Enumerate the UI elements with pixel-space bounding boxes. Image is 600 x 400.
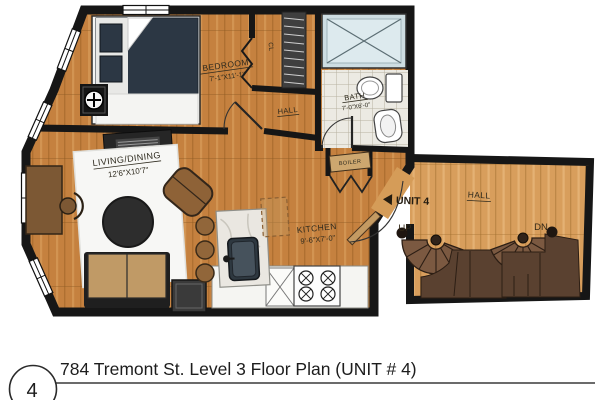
bathtub xyxy=(322,14,406,68)
coffee-table xyxy=(103,197,153,247)
hall-label-group: HALL xyxy=(276,105,299,117)
title-block: 4 784 Tremont St. Level 3 Floor Plan (UN… xyxy=(10,359,596,400)
cabinet-x xyxy=(266,268,294,306)
side-table xyxy=(172,280,206,312)
bar-stools xyxy=(196,217,214,282)
sheet-number: 4 xyxy=(26,380,37,400)
desk xyxy=(26,166,62,234)
nightstand xyxy=(80,84,108,116)
stove xyxy=(294,266,340,306)
stairs-up-label: UP xyxy=(398,223,411,234)
bathroom xyxy=(322,14,408,148)
unit-label: UNIT 4 xyxy=(396,195,430,208)
plan-title: 784 Tremont St. Level 3 Floor Plan (UNIT… xyxy=(60,359,417,379)
window-top xyxy=(123,6,169,15)
floor-plan-page: BOILER xyxy=(0,0,600,400)
sofa xyxy=(84,252,170,308)
cabinet-dashed xyxy=(261,197,290,237)
stairs-down-label: DN xyxy=(534,222,548,233)
stair-hall-label: HALL xyxy=(467,189,490,200)
closet-label-group: CL xyxy=(267,42,275,52)
closet-label: CL xyxy=(267,42,275,52)
floor-plan-canvas: BOILER xyxy=(0,0,600,400)
bath-sink xyxy=(373,108,403,143)
bed xyxy=(92,16,200,124)
